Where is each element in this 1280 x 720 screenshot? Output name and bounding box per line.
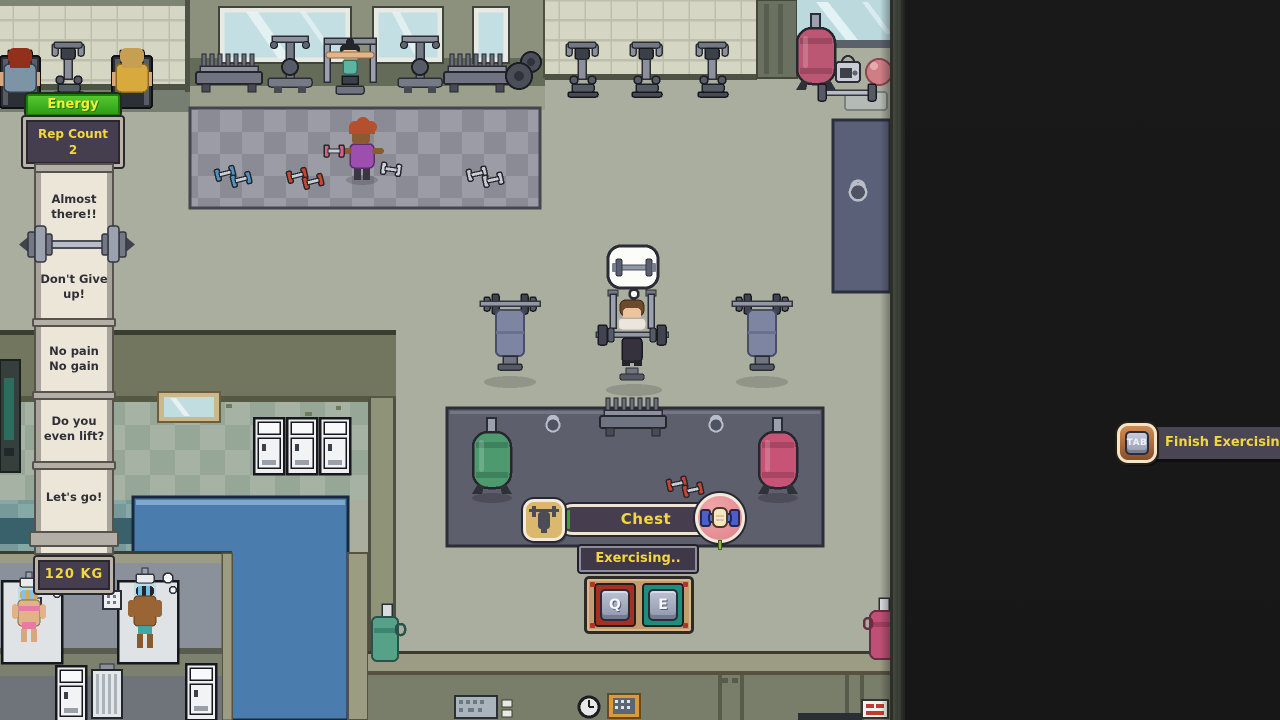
fist-dumbbell-icon bbox=[695, 493, 745, 543]
banner-quote: Almost there!! bbox=[37, 192, 111, 222]
banner-rail bbox=[29, 531, 119, 547]
gym-scene-viewport bbox=[0, 0, 905, 720]
kettlebell bbox=[710, 416, 723, 432]
screw-icon bbox=[683, 623, 688, 628]
radiator bbox=[92, 664, 122, 718]
locker bbox=[186, 664, 216, 720]
gym-scene bbox=[0, 0, 905, 720]
weight-label: 120 KG bbox=[38, 560, 110, 590]
exit-sign bbox=[862, 700, 888, 718]
tab-key-cap: TAB bbox=[1125, 431, 1149, 455]
key-e-cap: E bbox=[648, 589, 678, 621]
screw-icon bbox=[683, 582, 688, 587]
banner-rail bbox=[32, 318, 116, 327]
energy-label: Energy bbox=[47, 97, 98, 112]
bench-press-icon bbox=[523, 499, 565, 541]
rep-count-value: 2 bbox=[26, 142, 120, 158]
tab-key[interactable]: TAB bbox=[1117, 423, 1157, 463]
banner-barbell-icon bbox=[19, 222, 135, 266]
banner-quote: No pain No gain bbox=[37, 344, 111, 374]
window bbox=[373, 7, 443, 63]
finish-label: Finish Exercising bbox=[1149, 427, 1280, 459]
schedule-board bbox=[608, 694, 640, 718]
right-wall bbox=[890, 0, 905, 720]
exercise-progress: Chest bbox=[523, 493, 745, 553]
banner-rail bbox=[34, 163, 114, 173]
vending-machine bbox=[0, 360, 20, 472]
locker bbox=[56, 666, 86, 720]
rep-keys-panel: Q E bbox=[584, 576, 694, 634]
letterbox bbox=[905, 0, 1280, 720]
motivation-banner: Almost there!! Don't Give up! No pain No… bbox=[36, 166, 112, 553]
locker bbox=[287, 418, 317, 474]
key-e[interactable]: E bbox=[642, 583, 684, 627]
banner-rail bbox=[32, 461, 116, 470]
wall-cabinet bbox=[757, 0, 797, 78]
wall-vent bbox=[103, 591, 121, 609]
medal-stem bbox=[718, 540, 722, 550]
screw-icon bbox=[590, 623, 595, 628]
key-q-cap: Q bbox=[600, 589, 630, 621]
locker bbox=[320, 418, 350, 474]
banner-quote: Don't Give up! bbox=[37, 272, 111, 302]
status-panel: Exercising.. bbox=[579, 546, 697, 572]
energy-bar: Energy bbox=[26, 94, 120, 116]
bottom-room bbox=[368, 651, 905, 720]
game-screenshot: Energy Rep Count 2 Almost there!! Don't … bbox=[0, 0, 1280, 720]
finish-exercising-prompt[interactable]: TAB Finish Exercising bbox=[1117, 423, 1280, 463]
locker bbox=[254, 418, 284, 474]
key-q[interactable]: Q bbox=[594, 583, 636, 627]
locker-room-mirror bbox=[158, 392, 220, 422]
wall-clock bbox=[579, 697, 599, 717]
banner-rail bbox=[32, 391, 116, 400]
screw-icon bbox=[590, 582, 595, 587]
status-label: Exercising.. bbox=[595, 551, 680, 566]
banner-quote: Let's go! bbox=[37, 490, 111, 505]
medicine-ball bbox=[866, 59, 892, 85]
navy-mat bbox=[833, 120, 890, 292]
notice-board bbox=[455, 696, 497, 718]
rep-count-label: Rep Count bbox=[26, 126, 120, 142]
banner-quote: Do you even lift? bbox=[37, 414, 111, 444]
kettlebell bbox=[547, 416, 560, 432]
rep-count-panel: Rep Count 2 bbox=[23, 117, 123, 167]
weight-panel: 120 KG bbox=[35, 557, 113, 593]
